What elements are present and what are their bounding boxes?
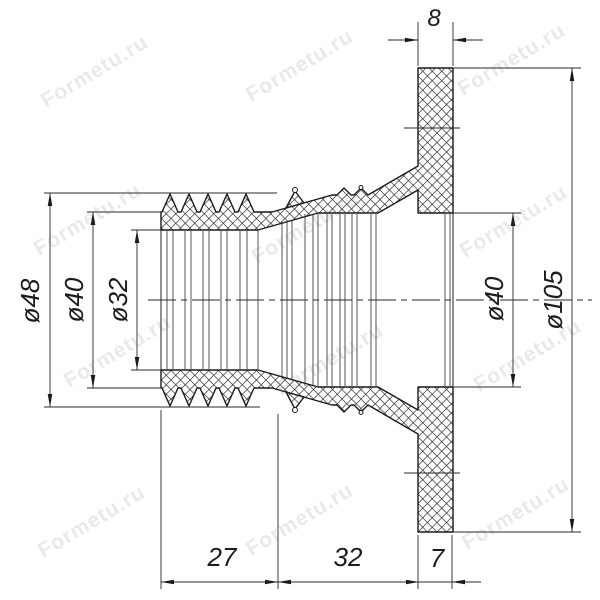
dim-label-length-32: 32: [334, 544, 363, 570]
dim-label-diameter-32: ø32: [105, 278, 131, 323]
centerline: [148, 128, 592, 473]
dim-label-diameter-48: ø48: [17, 279, 43, 324]
dim-label-diameter-105: ø105: [540, 270, 566, 329]
dim-label-length-27: 27: [208, 544, 237, 570]
part-wall-top: [161, 68, 453, 230]
dim-label-diameter-40-left: ø40: [61, 278, 87, 323]
dim-label-length-7: 7: [430, 545, 444, 571]
part-wall-bottom: [161, 370, 453, 532]
drawing-canvas: [0, 0, 600, 600]
dim-label-diameter-40-right: ø40: [481, 277, 507, 322]
dim-label-flange-thickness-8: 8: [427, 7, 440, 31]
drawing-sheet: ø48 ø40 ø32 ø40 ø105 8 27 32 7 Formetu.r…: [0, 0, 600, 600]
